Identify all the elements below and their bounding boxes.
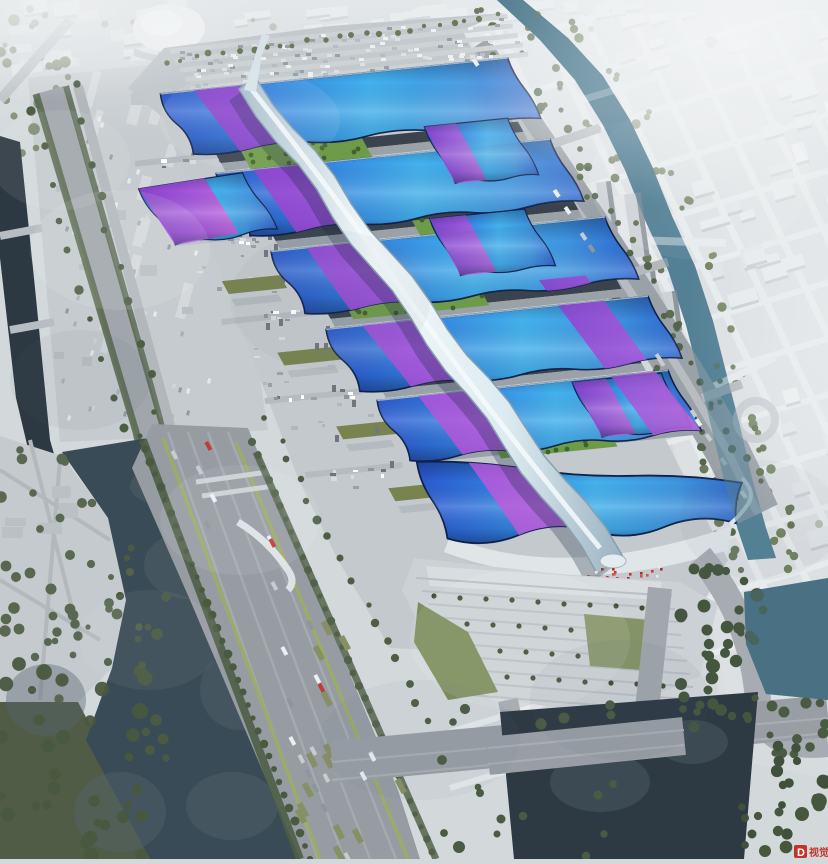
svg-text:视觉: 视觉 bbox=[809, 846, 828, 859]
svg-text:D: D bbox=[797, 847, 805, 859]
